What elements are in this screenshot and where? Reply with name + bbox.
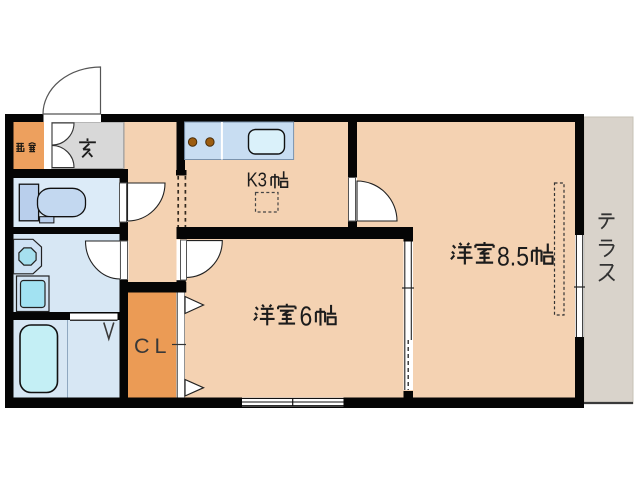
svg-text:K3: K3 bbox=[247, 169, 268, 192]
svg-text:8.5: 8.5 bbox=[497, 242, 529, 272]
svg-text:6: 6 bbox=[300, 301, 313, 332]
svg-text:CL: CL bbox=[134, 334, 171, 358]
